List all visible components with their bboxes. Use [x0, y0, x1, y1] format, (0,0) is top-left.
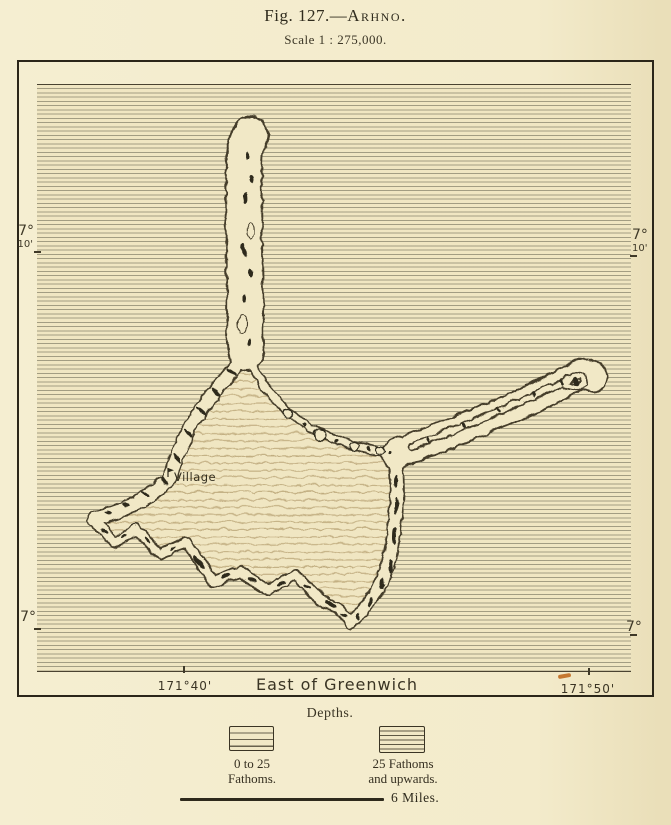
tick-lon-left: [183, 666, 185, 673]
scale-note: Scale 1 : 275,000.: [0, 32, 671, 48]
lat-label-upper-left: 7° 10': [8, 222, 34, 250]
village-label: Village: [174, 470, 216, 484]
legend-caption-shallow: 0 to 25 Fathoms.: [200, 757, 304, 787]
lon-label-left: 171°40': [150, 679, 220, 693]
lat-label-lower-left: 7°: [12, 608, 36, 624]
legend-heading: Depths.: [0, 706, 660, 722]
tick-lat-lower-right: [630, 634, 637, 636]
tick-lat-upper-right: [630, 255, 637, 257]
scale-bar-label: 6 Miles.: [391, 790, 439, 806]
map-name: Arhno.: [347, 6, 407, 25]
lat-label-lower-right: 7°: [626, 618, 650, 634]
meridian-note: East of Greenwich: [252, 675, 422, 694]
legend-swatch-shallow: [229, 726, 274, 751]
tick-lat-lower-left: [34, 628, 41, 630]
title-block: Fig. 127.—Arhno. Scale 1 : 275,000.: [0, 6, 671, 48]
legend-caption-deep: 25 Fathoms and upwards.: [340, 757, 466, 787]
atoll-map-graphic: Village: [37, 85, 631, 673]
village-marker: Village: [168, 468, 216, 484]
lat-label-upper-right: 7° 10': [632, 226, 658, 254]
lon-label-right: 171°50': [553, 682, 623, 696]
scale-bar: [180, 798, 384, 801]
sea-hatch-area: Village: [37, 84, 631, 672]
map-frame: Village: [17, 60, 654, 697]
figure-title: Fig. 127.—Arhno.: [0, 6, 671, 26]
tick-lat-upper-left: [34, 251, 41, 253]
legend-swatch-deep: [379, 726, 425, 753]
figure-number: Fig. 127.—: [264, 6, 347, 25]
scanned-atlas-page: Fig. 127.—Arhno. Scale 1 : 275,000.: [0, 0, 671, 825]
tick-lon-right: [588, 668, 590, 675]
